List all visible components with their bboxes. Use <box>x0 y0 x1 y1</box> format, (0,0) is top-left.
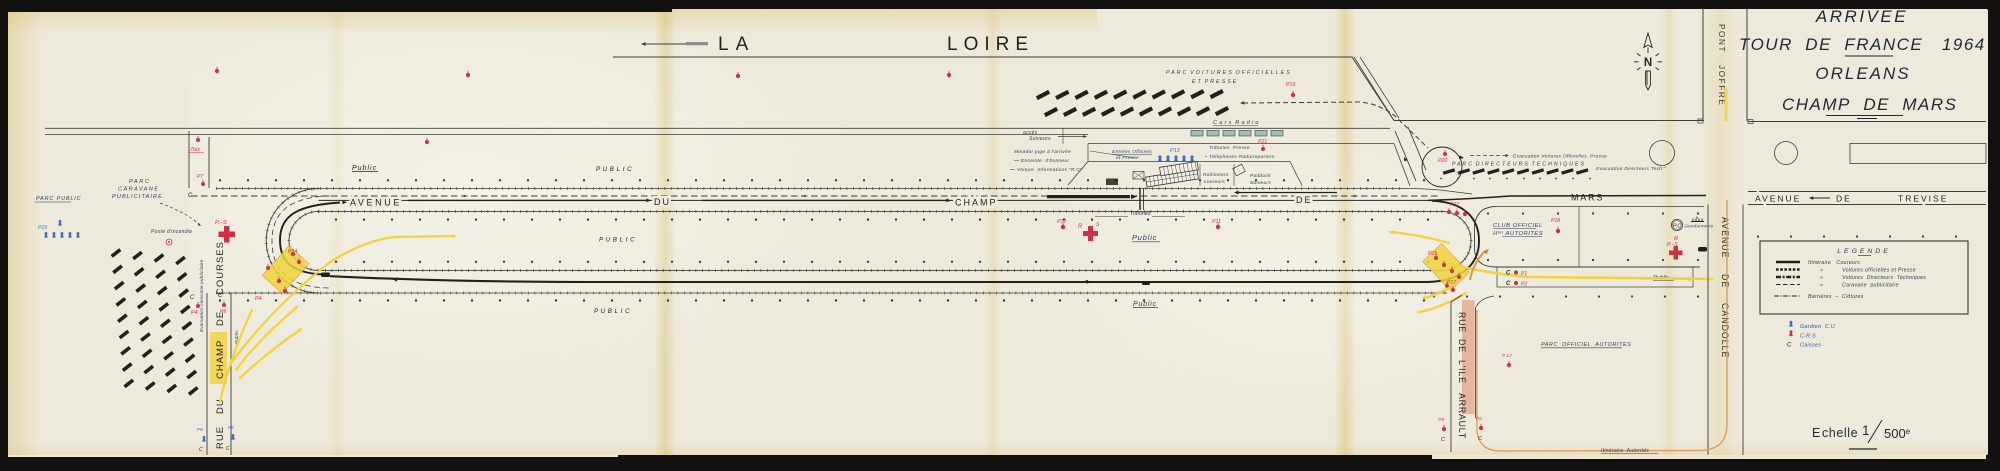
svg-text:N: N <box>1644 57 1652 69</box>
svg-text:Itinéraire Coureurs: Itinéraire Coureurs <box>1808 260 1860 266</box>
svg-text:C: C <box>190 295 195 301</box>
svg-text:P U B L I C: P U B L I C <box>599 237 635 244</box>
svg-text:P18: P18 <box>1551 218 1560 224</box>
svg-text:P7: P7 <box>197 174 204 180</box>
svg-text:ARRIVEE: ARRIVEE <box>1815 7 1908 26</box>
svg-text:MARS: MARS <box>1571 193 1604 203</box>
svg-text:COURSES: COURSES <box>215 241 226 295</box>
svg-text:C: C <box>188 193 193 199</box>
svg-text:Itinéraire Autorités: Itinéraire Autorités <box>1601 448 1649 454</box>
svg-text:Htel AUTORITES: Htel AUTORITES <box>1493 230 1543 238</box>
svg-text:C: C <box>1506 271 1511 277</box>
svg-text:P.C: P.C <box>1673 223 1681 229</box>
svg-text:Echelle: Echelle <box>1812 426 1858 440</box>
svg-text:R: R <box>1078 224 1083 230</box>
svg-text:Barrières – Clôtures: Barrières – Clôtures <box>1808 294 1864 300</box>
svg-text:Voiture Informations “R.C”: Voiture Informations “R.C” <box>1017 167 1082 173</box>
svg-text:L'ILE: L'ILE <box>1457 360 1467 384</box>
svg-text:Public: Public <box>352 165 377 172</box>
svg-text:DE: DE <box>1296 195 1313 205</box>
svg-text:Tribunes: Tribunes <box>1130 211 1151 217</box>
svg-text:Suiveurs: Suiveurs <box>1250 180 1271 186</box>
svg-text:P6: P6 <box>1476 416 1482 422</box>
svg-text:Tribunes Presse: Tribunes Presse <box>1209 145 1250 151</box>
svg-text:CANDOLLE: CANDOLLE <box>1720 303 1730 358</box>
svg-text:Téléphones Radioreporters: Téléphones Radioreporters <box>1209 154 1275 160</box>
svg-text:P19: P19 <box>38 225 47 231</box>
svg-text:LEGENDE: LEGENDE <box>1837 248 1890 255</box>
svg-text:P20: P20 <box>1438 158 1447 164</box>
svg-text:»: » <box>1820 275 1823 281</box>
svg-text:P14: P14 <box>288 249 297 255</box>
svg-text:Ralliement: Ralliement <box>1203 172 1229 178</box>
svg-text:RUE: RUE <box>1457 312 1467 333</box>
svg-text:C: C <box>199 447 203 453</box>
svg-text:S: S <box>1096 222 1100 228</box>
svg-text:DE: DE <box>1457 339 1467 353</box>
svg-text:DE: DE <box>1720 274 1730 288</box>
svg-text:P U B L I C: P U B L I C <box>596 166 632 173</box>
svg-text:coureurs: coureurs <box>1204 179 1225 185</box>
svg-text:AVENUE: AVENUE <box>1720 217 1730 259</box>
svg-text:PONT: PONT <box>1717 24 1726 53</box>
svg-text:P 17: P 17 <box>1502 353 1512 359</box>
svg-text:Paddock: Paddock <box>1250 173 1271 179</box>
svg-text:P U B L I C: P U B L I C <box>594 308 630 315</box>
svg-text:P4: P4 <box>191 310 197 316</box>
svg-text:P8: P8 <box>197 427 203 432</box>
svg-text:Gardien C.U: Gardien C.U <box>1800 324 1835 330</box>
svg-text:C a r s R a d i o: C a r s R a d i o <box>1213 120 1259 126</box>
svg-text:P2: P2 <box>1521 282 1527 288</box>
svg-text:P6: P6 <box>220 309 226 315</box>
svg-text:P5: P5 <box>1438 417 1444 423</box>
svg-text:»: » <box>1820 268 1823 274</box>
svg-text:C: C <box>218 293 223 299</box>
svg-text:C: C <box>226 446 230 452</box>
svg-text:DU: DU <box>654 197 671 207</box>
svg-text:Public: Public <box>1133 301 1157 308</box>
svg-text:P19: P19 <box>1286 82 1295 88</box>
svg-text:Evacuation Voitures Officielle: Evacuation Voitures Officielles. Presse <box>1513 154 1607 160</box>
svg-text:et Presse: et Presse <box>1116 155 1139 161</box>
svg-text:PARC OFFICIEL AUTORITES: PARC OFFICIEL AUTORITES <box>1541 342 1631 348</box>
svg-text:P4: P4 <box>255 296 261 302</box>
svg-text:Voitures Directeurs Techniqu: Voitures Directeurs Techniques <box>1842 275 1926 281</box>
svg-text:CHAMP DE MARS: CHAMP DE MARS <box>1782 95 1958 114</box>
svg-text:P21: P21 <box>1258 139 1267 145</box>
svg-text:E T P R E S S E: E T P R E S S E <box>1192 79 1237 85</box>
svg-text:P15: P15 <box>1428 251 1437 257</box>
svg-text:Caisses: Caisses <box>1800 343 1821 349</box>
svg-text:Evacuation caravane publicitai: Evacuation caravane publicitaire <box>199 259 204 332</box>
svg-text:TREVISE: TREVISE <box>1898 194 1948 204</box>
svg-text:1: 1 <box>1862 423 1870 438</box>
svg-text:C: C <box>1506 281 1511 287</box>
svg-text:CHAMP: CHAMP <box>215 340 226 379</box>
svg-text:P22: P22 <box>1450 202 1459 208</box>
svg-text:Voitures officielles et Presse: Voitures officielles et Presse <box>1842 268 1916 274</box>
svg-text:ARRAULT: ARRAULT <box>1457 393 1467 439</box>
svg-text:P1: P1 <box>1521 271 1527 277</box>
svg-text:Evacuation Directeurs Tech’’’: Evacuation Directeurs Tech’’’ <box>1596 166 1667 172</box>
svg-text:Enceinte d'honneur: Enceinte d'honneur <box>1021 158 1069 164</box>
svg-text:Caravane publicitaire: Caravane publicitaire <box>1842 283 1899 289</box>
svg-text:DE: DE <box>1836 194 1852 204</box>
svg-text:C: C <box>1787 343 1792 349</box>
svg-text:»: » <box>1820 283 1823 289</box>
svg-text:LOIRE: LOIRE <box>947 34 1034 55</box>
svg-text:P A R C V O I T U R E S O F: P A R C V O I T U R E S O F F I C I E L … <box>1166 70 1290 76</box>
svg-text:C: C <box>1441 437 1445 443</box>
svg-text:PARC: PARC <box>129 179 151 185</box>
svg-text:P10: P10 <box>1057 219 1066 225</box>
svg-text:RUE: RUE <box>215 426 226 449</box>
svg-text:Suiveurs: Suiveurs <box>1029 136 1051 142</box>
svg-text:P.−S: P.−S <box>215 220 227 226</box>
svg-text:7bis: 7bis <box>190 147 200 153</box>
svg-text:PARC PUBLIC: PARC PUBLIC <box>36 196 81 202</box>
svg-text:Entrées Officiels: Entrées Officiels <box>1112 149 1152 155</box>
svg-text:Gendarmerie: Gendarmerie <box>1685 224 1714 229</box>
svg-text:AVENUE: AVENUE <box>350 198 402 208</box>
svg-text:Minador juge à l'arrivée: Minador juge à l'arrivée <box>1014 149 1071 155</box>
svg-text:AVENUE: AVENUE <box>1755 194 1801 204</box>
svg-text:P13: P13 <box>1170 148 1180 154</box>
svg-text:500e: 500e <box>1884 426 1911 441</box>
svg-text:Public: Public <box>1132 233 1157 242</box>
svg-text:P11: P11 <box>1212 219 1221 225</box>
svg-text:CARAVANE: CARAVANE <box>118 187 159 193</box>
svg-text:C.R.S: C.R.S <box>1800 334 1816 340</box>
svg-text:ORLEANS: ORLEANS <box>1815 64 1910 83</box>
svg-text:PUBLICITAIRE.: PUBLICITAIRE. <box>112 194 166 200</box>
svg-text:P A R C D I R E C T E U R S: P A R C D I R E C T E U R S T E C H N I … <box>1452 162 1585 168</box>
svg-text:CLUB OFFICIEL: CLUB OFFICIEL <box>1493 223 1543 229</box>
svg-text:C: C <box>1478 436 1482 442</box>
svg-text:CHAMP: CHAMP <box>955 198 998 208</box>
svg-text:LA: LA <box>718 34 755 55</box>
svg-text:P9: P9 <box>228 425 234 430</box>
svg-text:TOUR DE FRANCE 1964: TOUR DE FRANCE 1964 <box>1739 35 1986 54</box>
svg-text:Poste d'incendie: Poste d'incendie <box>151 229 192 235</box>
